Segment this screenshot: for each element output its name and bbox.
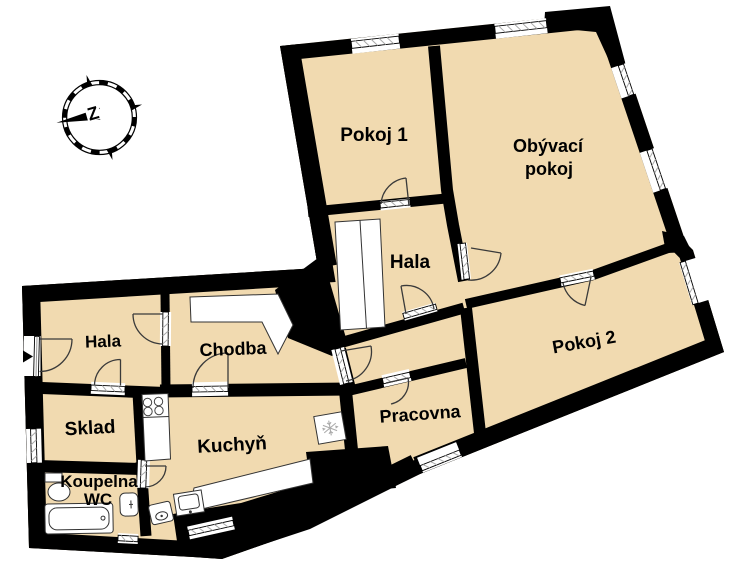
svg-text:Chodba: Chodba	[199, 338, 268, 360]
svg-text:WC: WC	[84, 490, 112, 509]
svg-text:Sklad: Sklad	[64, 417, 116, 441]
svg-text:Obývací: Obývací	[513, 136, 584, 156]
svg-text:Kuchyň: Kuchyň	[197, 433, 268, 458]
svg-text:Koupelna: Koupelna	[60, 472, 138, 491]
svg-text:Z: Z	[85, 102, 101, 124]
svg-text:Hala: Hala	[390, 252, 431, 273]
svg-text:Hala: Hala	[85, 331, 122, 351]
svg-text:pokoj: pokoj	[525, 159, 573, 179]
svg-text:Pokoj 1: Pokoj 1	[340, 125, 408, 146]
